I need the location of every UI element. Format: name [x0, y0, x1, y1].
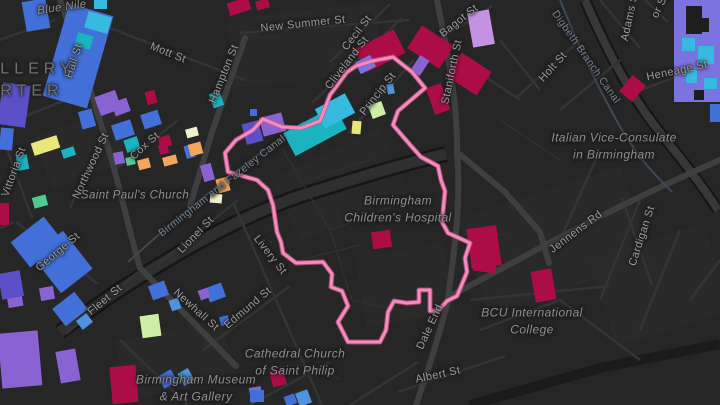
building	[162, 154, 178, 166]
building	[227, 0, 252, 16]
building	[109, 365, 138, 404]
building	[682, 38, 695, 51]
building	[686, 70, 697, 83]
building	[215, 177, 230, 194]
building	[0, 203, 9, 225]
building	[426, 83, 451, 115]
map-render-layer	[0, 0, 720, 405]
building	[698, 46, 714, 64]
map-canvas[interactable]: New Summer StCecil StCliveland StPrincip…	[0, 0, 720, 405]
building	[137, 158, 151, 171]
building	[0, 330, 42, 388]
building	[686, 6, 702, 34]
building	[94, 0, 107, 9]
building	[22, 0, 51, 32]
building	[140, 314, 162, 338]
building	[295, 389, 312, 405]
building	[473, 257, 496, 273]
building	[0, 82, 31, 127]
building	[284, 393, 298, 405]
building	[144, 90, 157, 105]
building	[694, 90, 704, 100]
building	[200, 163, 215, 182]
building	[39, 286, 55, 301]
building	[368, 101, 386, 119]
building	[351, 121, 361, 135]
building	[185, 127, 199, 139]
building	[250, 390, 264, 402]
building	[55, 349, 80, 384]
building	[700, 18, 709, 32]
building	[210, 193, 223, 203]
building	[255, 0, 270, 11]
building	[0, 270, 24, 299]
building	[32, 194, 48, 208]
building	[467, 9, 495, 47]
building	[250, 109, 257, 116]
building	[140, 110, 162, 130]
building	[386, 83, 395, 94]
building	[710, 104, 720, 122]
building	[371, 230, 392, 249]
building	[269, 368, 287, 387]
building	[704, 78, 717, 89]
building	[16, 154, 29, 171]
building	[0, 127, 14, 150]
